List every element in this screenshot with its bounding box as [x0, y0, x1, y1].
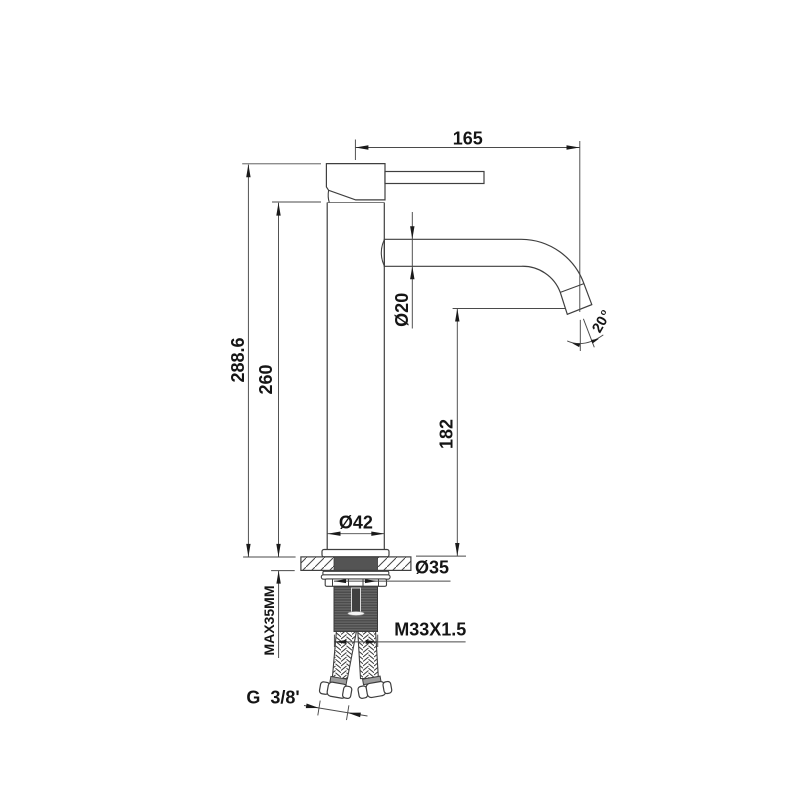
svg-text:165: 165: [453, 128, 483, 148]
svg-text:MAX35MM: MAX35MM: [261, 585, 277, 655]
svg-text:182: 182: [436, 419, 456, 449]
svg-text:Ø42: Ø42: [339, 512, 373, 532]
svg-text:Ø35: Ø35: [415, 558, 449, 578]
svg-text:288.6: 288.6: [228, 337, 248, 382]
svg-text:M33X1.5: M33X1.5: [394, 620, 466, 640]
svg-text:Ø20: Ø20: [392, 293, 412, 327]
svg-text:260: 260: [256, 364, 276, 394]
svg-text:G 3/8': G 3/8': [246, 688, 299, 708]
